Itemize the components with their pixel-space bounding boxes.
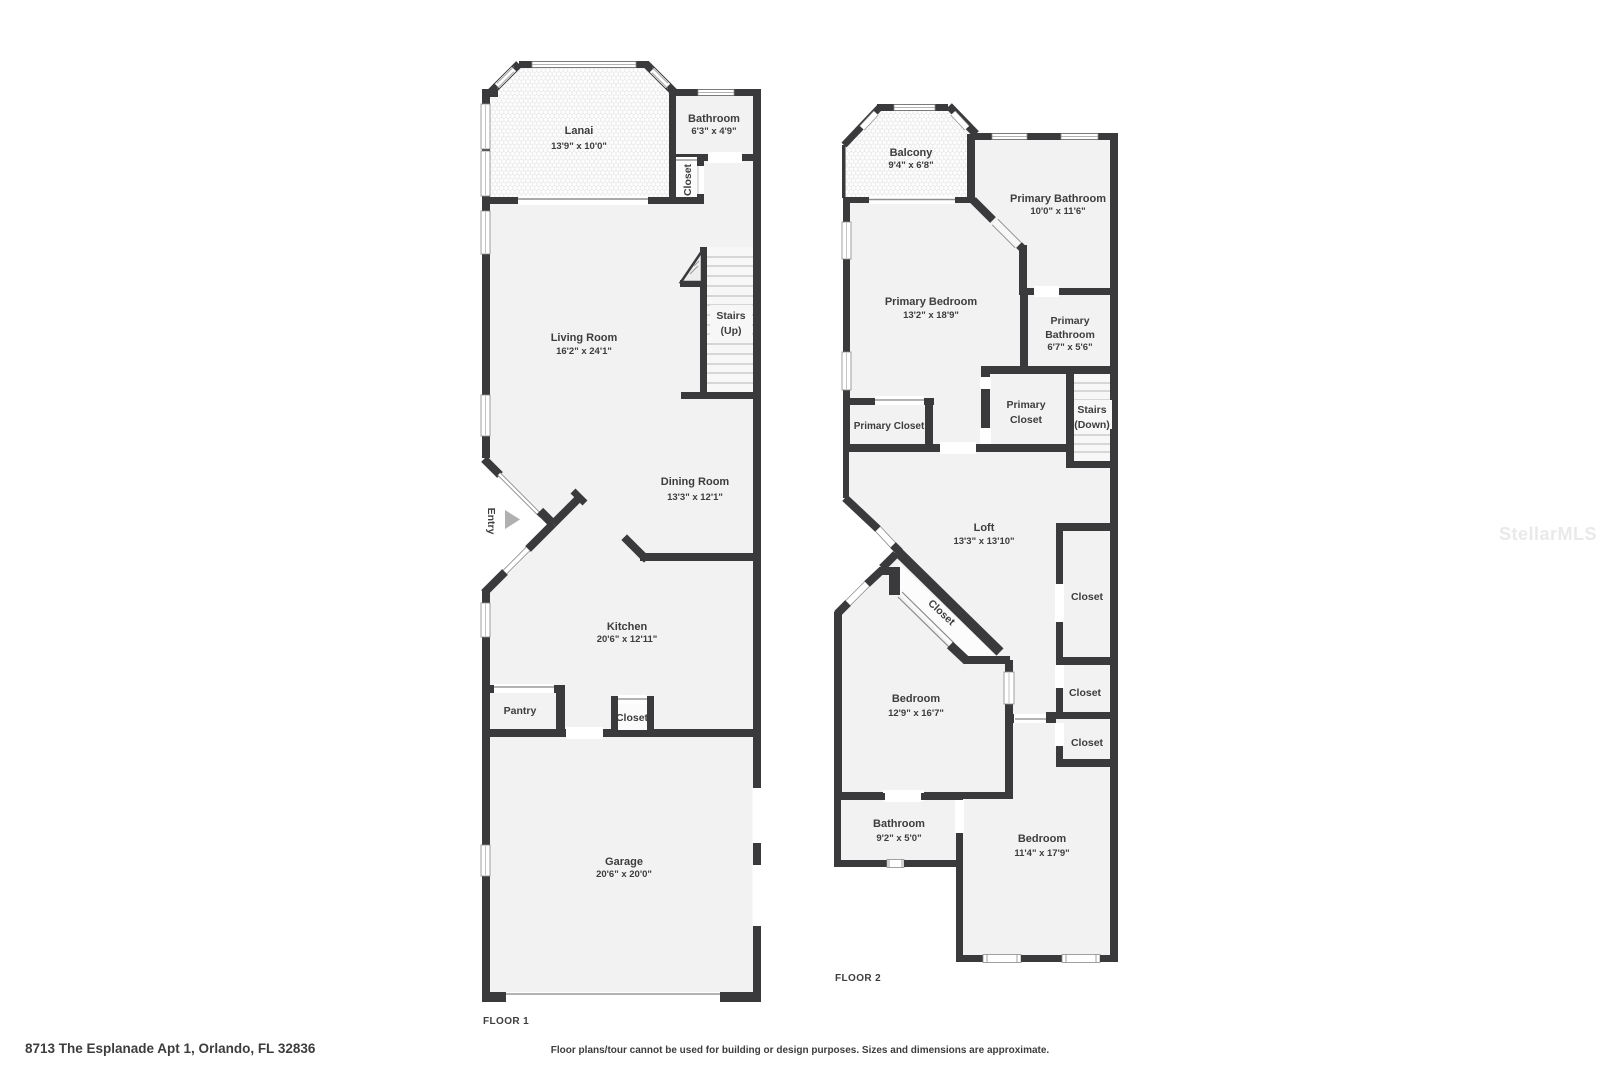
svg-text:6'3" x 4'9": 6'3" x 4'9": [691, 126, 736, 137]
svg-text:Loft: Loft: [974, 522, 995, 534]
svg-text:Bedroom: Bedroom: [892, 693, 941, 705]
svg-text:20'6" x 20'0": 20'6" x 20'0": [596, 869, 652, 880]
svg-text:Living Room: Living Room: [551, 332, 618, 344]
svg-text:9'2" x 5'0": 9'2" x 5'0": [876, 833, 921, 844]
svg-text:(Up): (Up): [721, 325, 742, 337]
svg-text:Garage: Garage: [605, 856, 643, 868]
svg-text:Primary Bathroom: Primary Bathroom: [1010, 193, 1106, 205]
svg-text:Balcony: Balcony: [890, 147, 934, 159]
svg-text:Entry: Entry: [485, 508, 497, 535]
svg-text:13'9" x 10'0": 13'9" x 10'0": [551, 141, 607, 152]
svg-text:Closet: Closet: [682, 163, 694, 196]
svg-text:Kitchen: Kitchen: [607, 621, 648, 633]
svg-text:Primary Bedroom: Primary Bedroom: [885, 296, 978, 308]
svg-text:6'7" x 5'6": 6'7" x 5'6": [1047, 342, 1092, 353]
svg-text:Dining Room: Dining Room: [661, 476, 730, 488]
svg-text:Lanai: Lanai: [565, 125, 594, 137]
svg-text:Stairs: Stairs: [716, 310, 745, 322]
svg-text:StellarMLS: StellarMLS: [1499, 524, 1597, 544]
svg-text:Pantry: Pantry: [504, 705, 537, 717]
svg-text:FLOOR 2: FLOOR 2: [835, 973, 881, 984]
svg-text:9'4" x 6'8": 9'4" x 6'8": [888, 160, 933, 171]
svg-text:8713 The Esplanade Apt 1, Orla: 8713 The Esplanade Apt 1, Orlando, FL 32…: [25, 1041, 316, 1056]
svg-text:Primary: Primary: [1006, 399, 1045, 411]
svg-text:Bathroom: Bathroom: [688, 113, 740, 125]
svg-text:Closet: Closet: [1071, 591, 1104, 603]
svg-text:Closet: Closet: [1010, 414, 1043, 426]
svg-text:(Down): (Down): [1074, 419, 1110, 431]
svg-text:Bathroom: Bathroom: [873, 818, 925, 830]
svg-text:16'2" x 24'1": 16'2" x 24'1": [556, 346, 612, 357]
svg-text:13'2" x 18'9": 13'2" x 18'9": [903, 310, 959, 321]
svg-text:FLOOR 1: FLOOR 1: [483, 1016, 529, 1027]
svg-text:Bedroom: Bedroom: [1018, 833, 1067, 845]
svg-text:Stairs: Stairs: [1077, 404, 1106, 416]
svg-text:11'4" x 17'9": 11'4" x 17'9": [1014, 848, 1069, 859]
svg-text:Bathroom: Bathroom: [1045, 329, 1095, 341]
svg-text:13'3" x 13'10": 13'3" x 13'10": [953, 536, 1014, 547]
svg-text:Primary: Primary: [1050, 315, 1089, 327]
svg-text:Closet: Closet: [1069, 687, 1102, 699]
svg-text:Closet: Closet: [1071, 737, 1104, 749]
svg-text:Floor plans/tour cannot be use: Floor plans/tour cannot be used for buil…: [551, 1045, 1050, 1056]
svg-text:20'6" x 12'11": 20'6" x 12'11": [597, 634, 658, 645]
svg-text:13'3" x 12'1": 13'3" x 12'1": [667, 492, 723, 503]
svg-text:Primary Closet: Primary Closet: [854, 421, 925, 432]
svg-text:10'0" x 11'6": 10'0" x 11'6": [1030, 206, 1085, 217]
svg-text:Closet: Closet: [616, 712, 649, 724]
svg-text:12'9" x 16'7": 12'9" x 16'7": [888, 708, 944, 719]
